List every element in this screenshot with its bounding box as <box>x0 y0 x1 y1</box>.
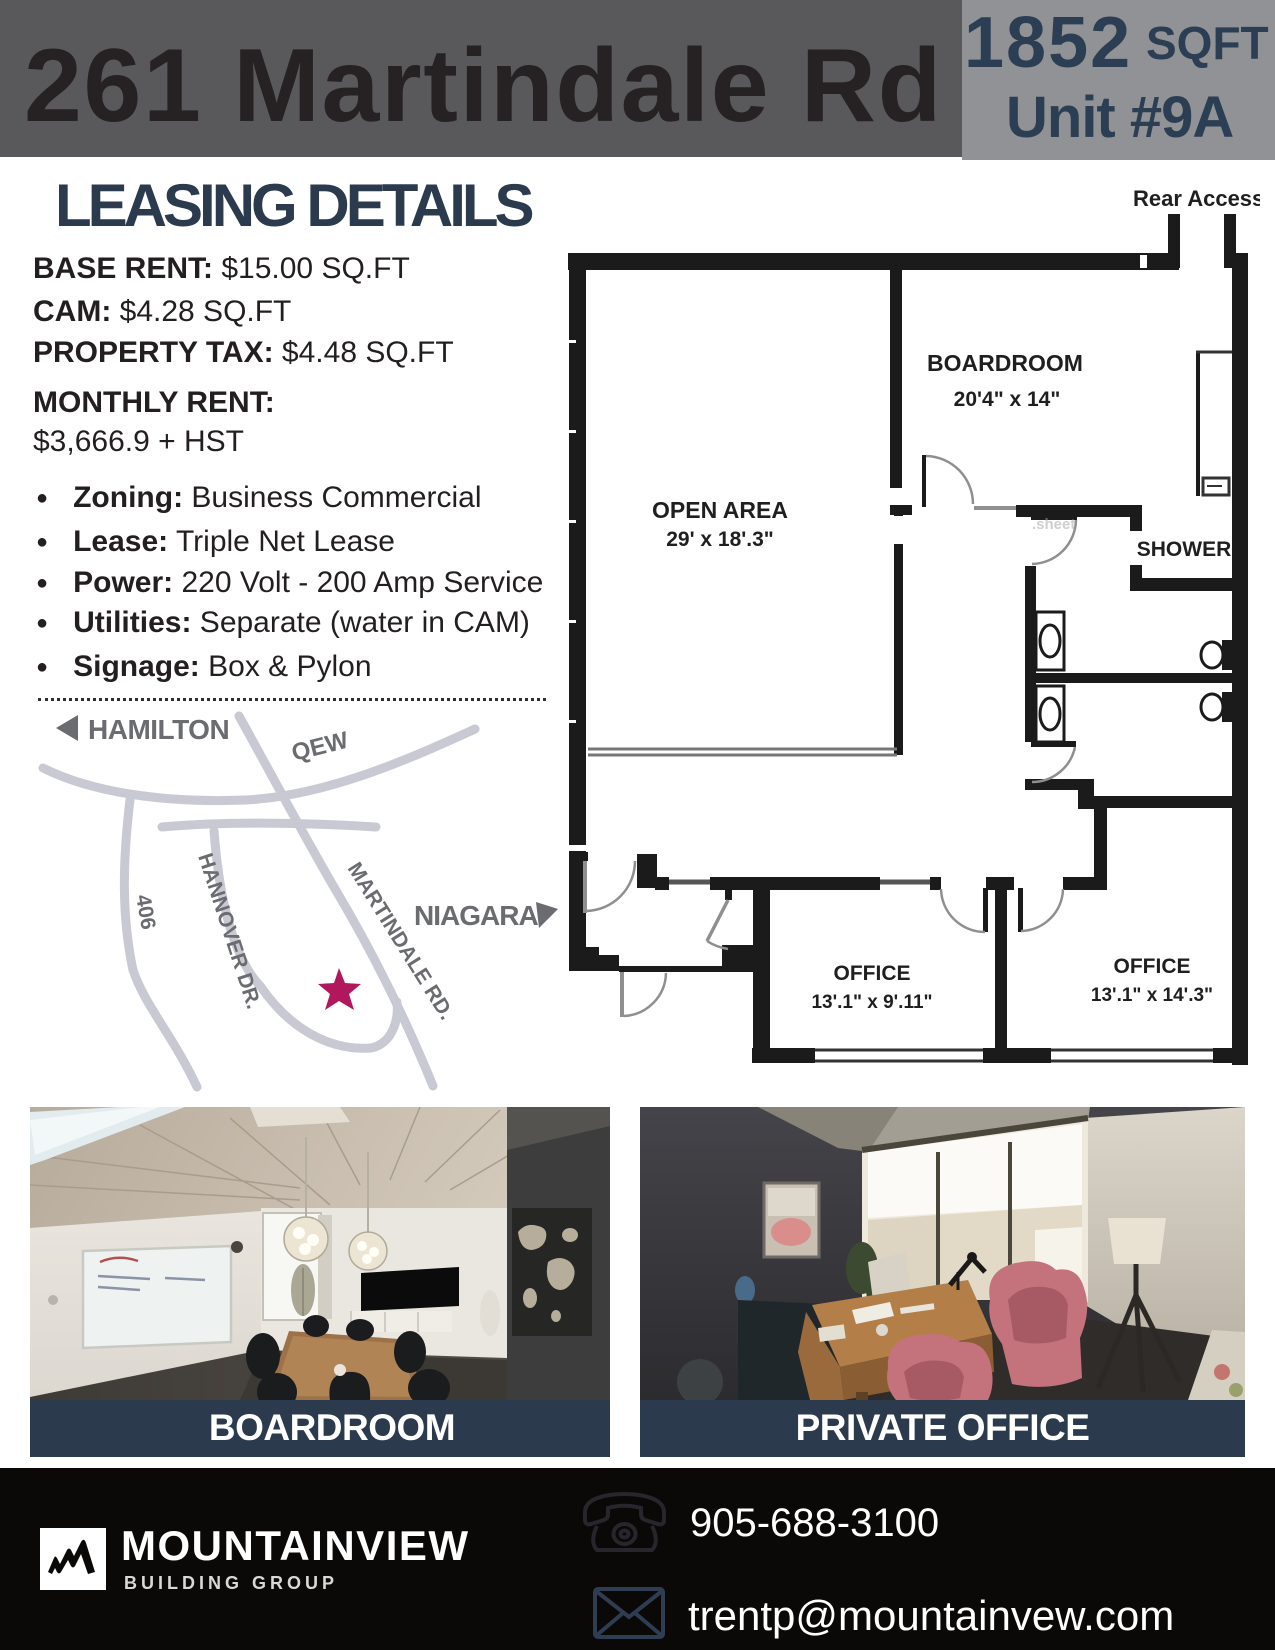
svg-text:QEW: QEW <box>289 727 351 767</box>
svg-text:13'.1" x 14'.3": 13'.1" x 14'.3" <box>1091 985 1213 1006</box>
svg-text:OFFICE: OFFICE <box>834 962 911 985</box>
svg-text:.sheet: .sheet <box>1032 516 1075 533</box>
svg-text:NIAGARA: NIAGARA <box>414 900 538 931</box>
svg-text:Rear Access: Rear Access <box>1133 186 1260 211</box>
svg-text:f: f <box>893 511 905 549</box>
svg-text:406: 406 <box>131 893 160 932</box>
svg-text:SHOWER: SHOWER <box>1137 538 1232 561</box>
svg-text:13'.1" x 9'.11": 13'.1" x 9'.11" <box>811 992 932 1013</box>
svg-text:BOARDROOM: BOARDROOM <box>927 350 1083 376</box>
svg-text:29' x 18'.3": 29' x 18'.3" <box>666 528 774 551</box>
svg-text:HANNOVER DR.: HANNOVER DR. <box>193 850 265 1011</box>
svg-text:OPEN AREA: OPEN AREA <box>652 497 788 523</box>
svg-text:OFFICE: OFFICE <box>1114 955 1191 978</box>
svg-text:20'4" x 14": 20'4" x 14" <box>954 388 1061 411</box>
svg-text:HAMILTON: HAMILTON <box>88 714 229 745</box>
